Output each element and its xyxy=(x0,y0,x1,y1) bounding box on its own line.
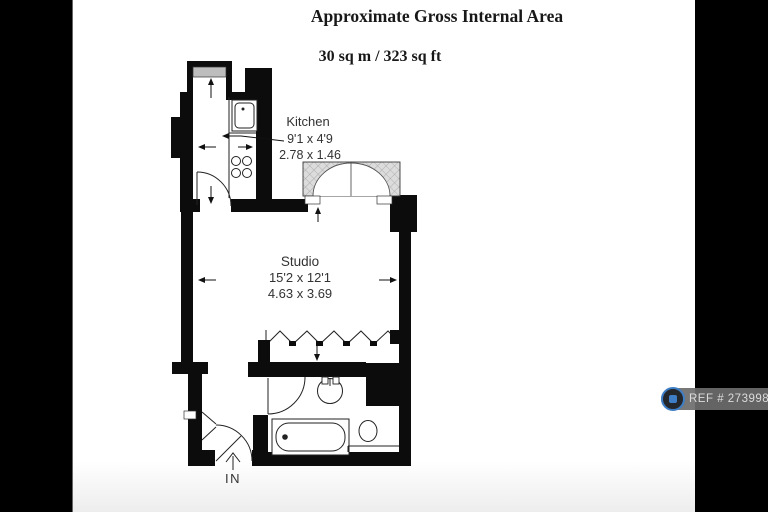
kitchen-name: Kitchen xyxy=(286,114,329,129)
floor-plan: Approximate Gross Internal Area 30 sq m … xyxy=(0,0,768,512)
area-subtitle: 30 sq m / 323 sq ft xyxy=(319,48,442,65)
kitchen-label: Kitchen 9'1 x 4'9 2.78 x 1.46 xyxy=(279,114,341,162)
bay-window xyxy=(193,67,226,77)
toilet xyxy=(348,421,399,453)
ref-badge: REF # 2739980 xyxy=(661,388,768,410)
studio-dim-imperial: 15'2 x 12'1 xyxy=(269,270,331,285)
kitchen-dim-imperial: 9'1 x 4'9 xyxy=(287,132,333,146)
studio-label: Studio 15'2 x 12'1 4.63 x 3.69 xyxy=(268,254,332,301)
closet-door xyxy=(202,412,216,440)
photo-frame: Approximate Gross Internal Area 30 sq m … xyxy=(0,0,768,512)
studio-dim-metric: 4.63 x 3.69 xyxy=(268,286,332,301)
folding-doors xyxy=(258,330,402,364)
camera-icon xyxy=(661,387,685,411)
entrance-label: IN xyxy=(225,471,241,486)
french-doors-balcony xyxy=(303,162,400,204)
entrance-arrow xyxy=(226,453,240,470)
bathtub xyxy=(272,419,349,455)
entrance-door xyxy=(216,425,252,461)
kitchen-sink xyxy=(232,100,257,131)
page-title: Approximate Gross Internal Area xyxy=(311,6,564,26)
kitchen-dim-metric: 2.78 x 1.46 xyxy=(279,148,341,162)
kitchen-door xyxy=(197,172,231,206)
studio-name: Studio xyxy=(281,254,319,269)
wash-basin xyxy=(318,377,343,404)
ref-number: REF # 2739980 xyxy=(689,393,768,405)
bathroom-door xyxy=(268,377,305,414)
